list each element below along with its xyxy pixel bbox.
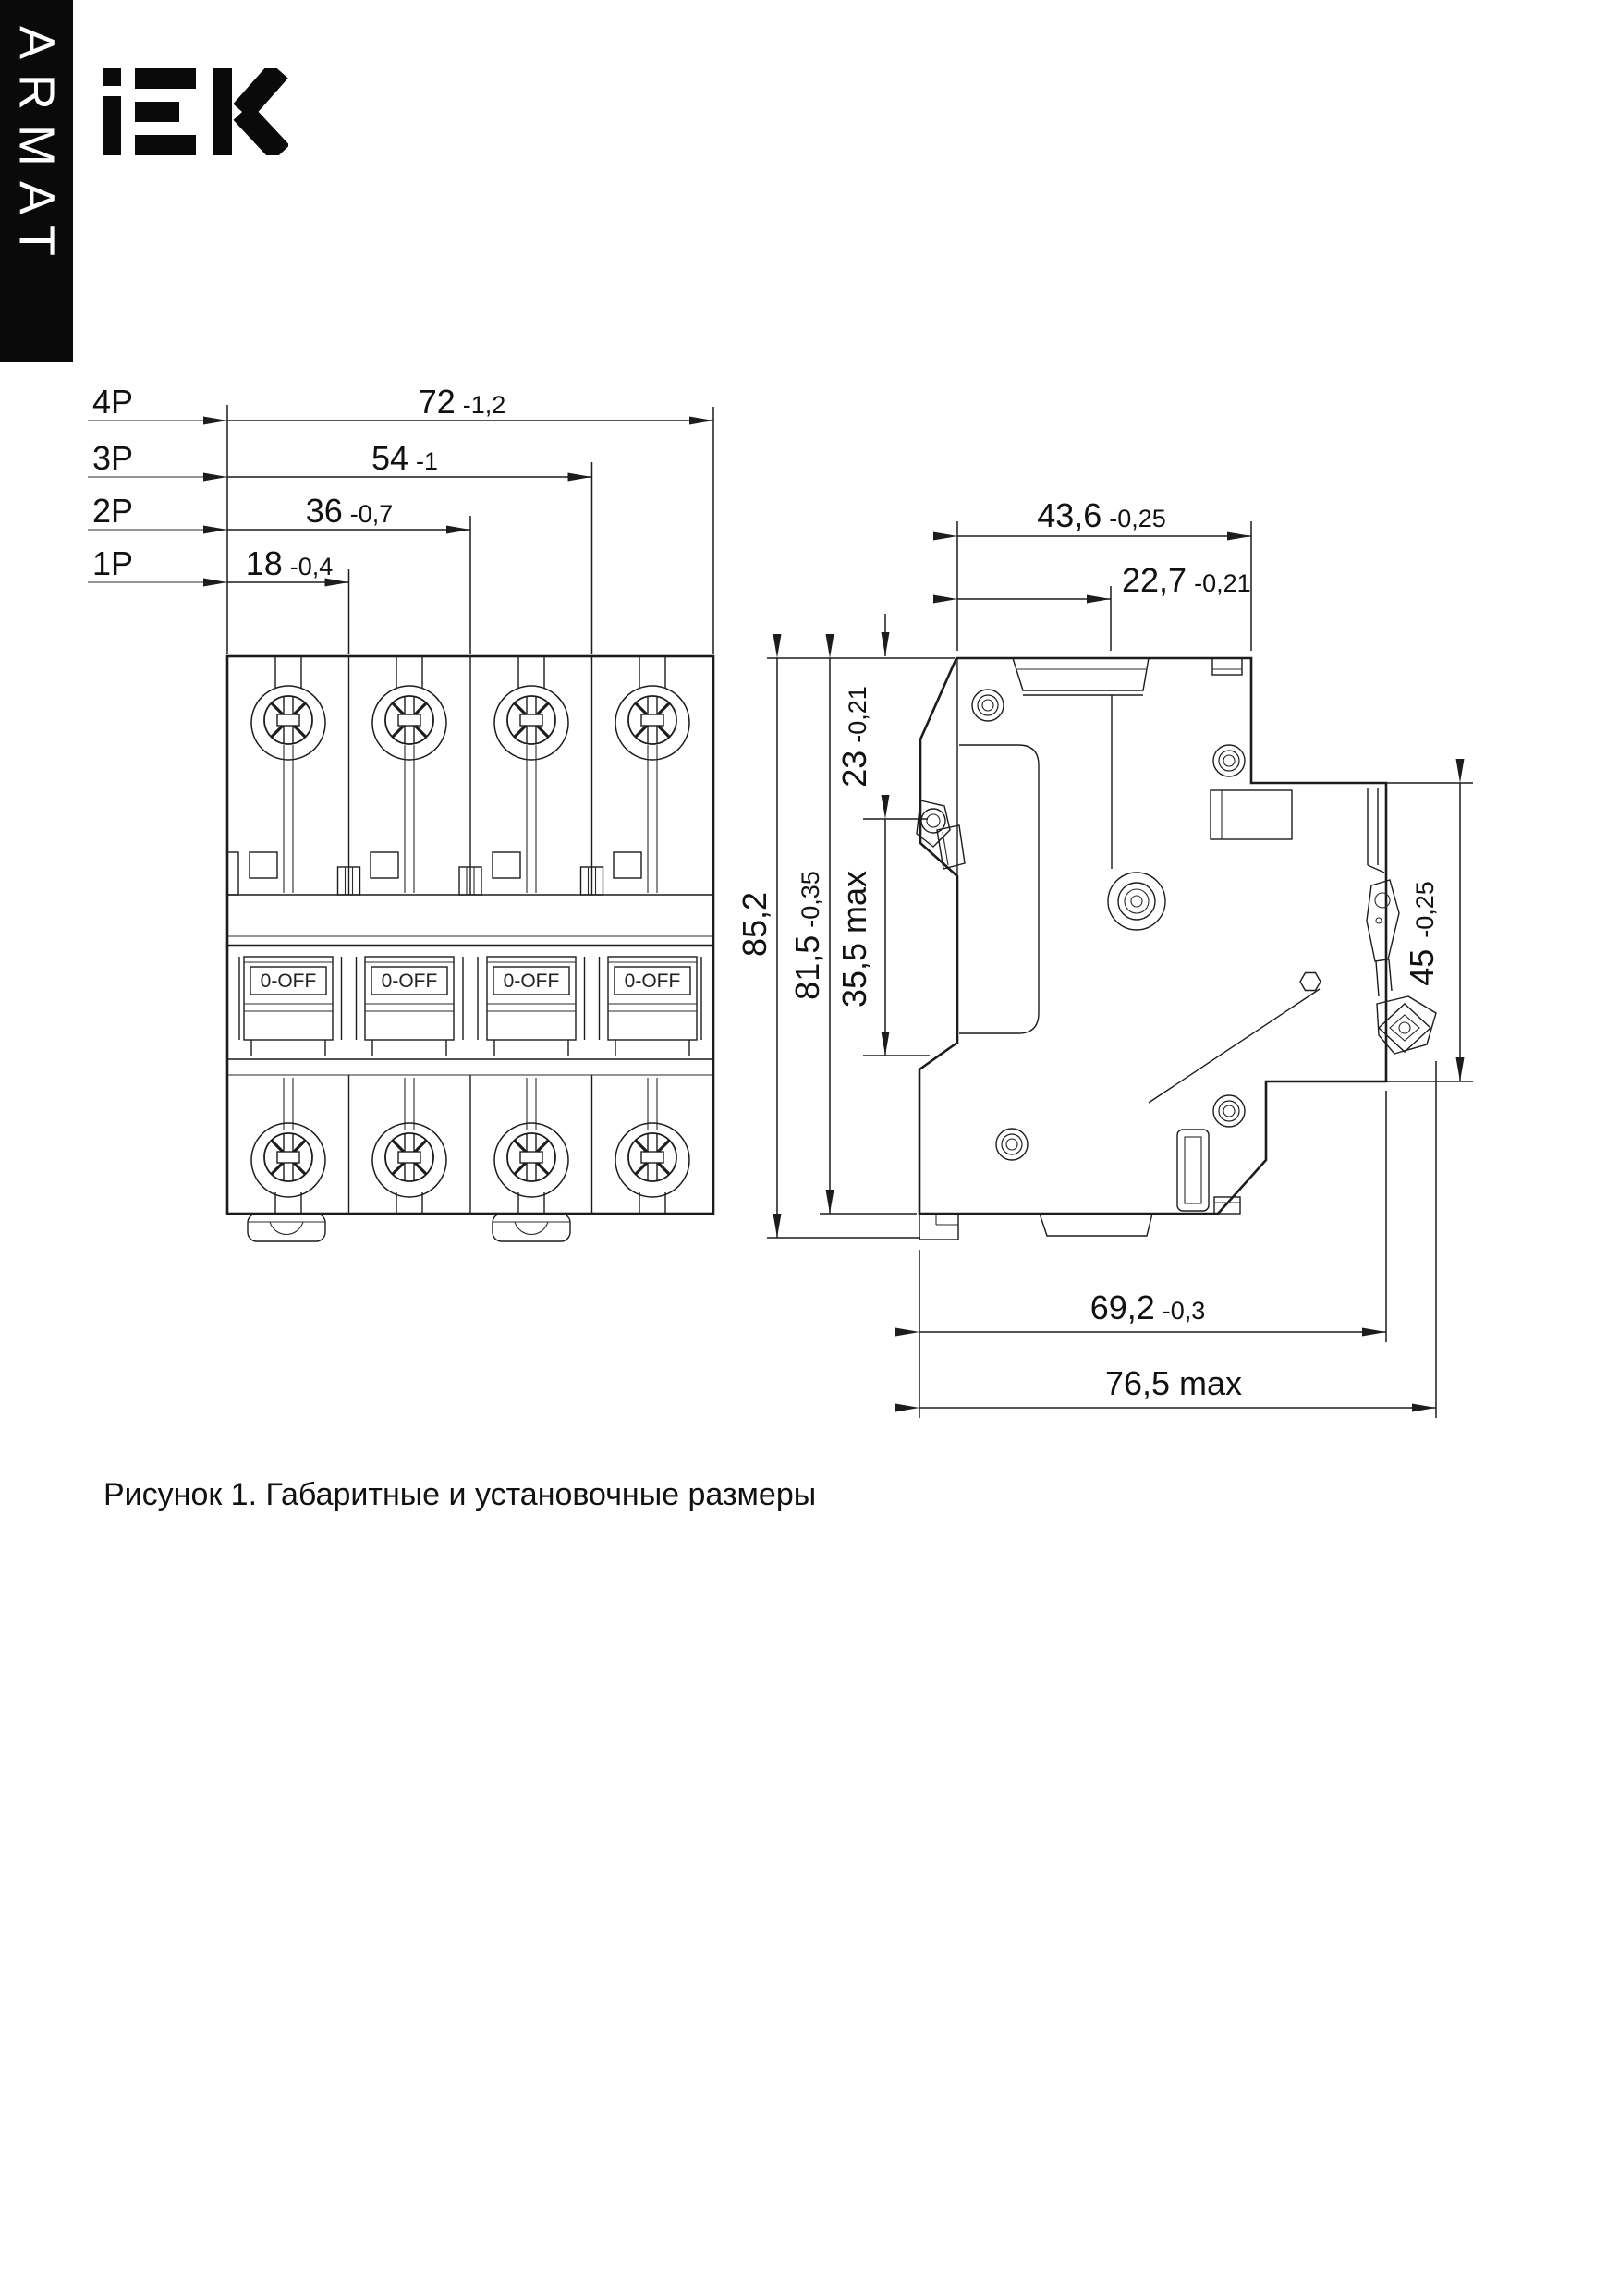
front-view: 4P 3P 2P 1P 72-1,2 54: [88, 383, 713, 1241]
toggle-label-1: 0-OFF: [261, 971, 317, 992]
toggle-label-2: 0-OFF: [382, 971, 438, 992]
pole-label-4p: 4P: [92, 383, 133, 421]
upper-terminal-screws: [250, 656, 689, 893]
side-dimensions: 43,6-0,25 22,7-0,21 85,2 81,5-0,35 23-0,…: [736, 496, 1473, 1418]
pole-label-3p: 3P: [92, 439, 133, 477]
front-dimensions: 4P 3P 2P 1P 72-1,2 54: [88, 383, 713, 654]
side-view: 43,6-0,25 22,7-0,21 85,2 81,5-0,35 23-0,…: [736, 496, 1473, 1418]
figure-caption: Рисунок 1. Габаритные и установочные раз…: [103, 1477, 816, 1513]
dim-width-3p: 54-1: [371, 439, 438, 477]
dim-din-recess: 45-0,25: [1403, 881, 1441, 986]
side-view-details: [917, 658, 1436, 1240]
dim-height-overall: 85,2: [736, 892, 773, 957]
dim-screw-to-clip: 35,5 max: [835, 871, 873, 1008]
dim-depth-max: 76,5 max: [1105, 1364, 1242, 1402]
pole-label-2p: 2P: [92, 492, 133, 530]
technical-drawing: 4P 3P 2P 1P 72-1,2 54: [0, 0, 1619, 2296]
dim-height-body: 81,5-0,35: [788, 871, 826, 1000]
dim-width-inner: 22,7-0,21: [1122, 561, 1251, 599]
dim-width-top: 43,6-0,25: [1037, 496, 1166, 534]
front-view-body: 0-OFF 0-OFF 0-OFF 0-OFF: [227, 656, 713, 1241]
dim-width-2p: 36-0,7: [306, 492, 394, 530]
toggle-label-4: 0-OFF: [625, 971, 681, 992]
toggle-label-3: 0-OFF: [504, 971, 560, 992]
din-clip-tabs: [248, 1214, 570, 1241]
page: ARMAT: [0, 0, 1619, 2296]
dim-width-1p: 18-0,4: [246, 544, 334, 582]
toggle-handles: 0-OFF 0-OFF 0-OFF 0-OFF: [239, 957, 701, 1056]
side-view-outline: [919, 658, 1386, 1214]
dim-width-4p: 72-1,2: [419, 383, 506, 421]
pole-label-1p: 1P: [92, 544, 133, 582]
dim-depth: 69,2-0,3: [1090, 1288, 1206, 1326]
dim-top-to-screw: 23-0,21: [835, 686, 873, 788]
